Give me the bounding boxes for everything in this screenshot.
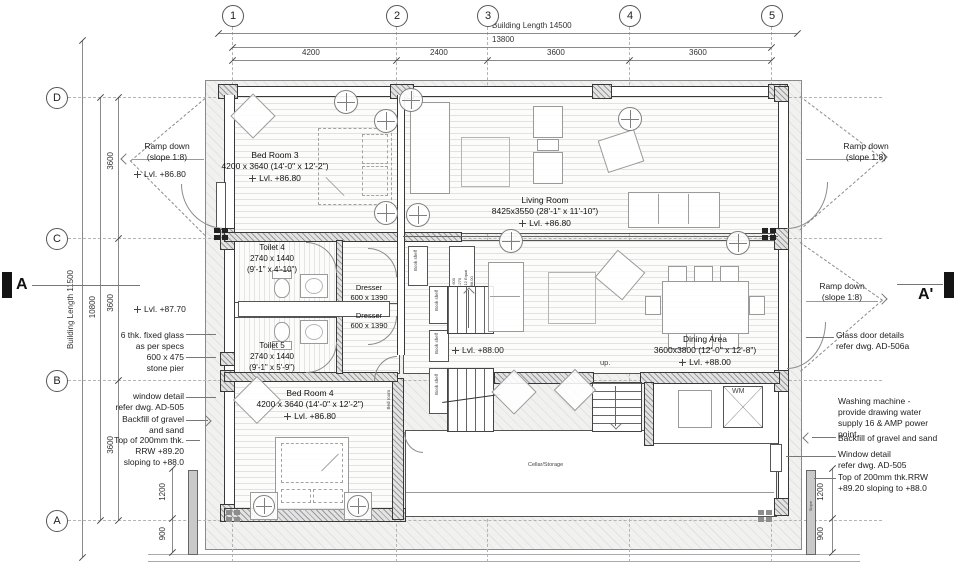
ceiling-fan-icon — [618, 107, 642, 131]
leader-line — [812, 437, 836, 438]
room-name: Toilet 5 — [238, 341, 306, 352]
dining-chair — [645, 296, 661, 315]
armchair — [533, 106, 563, 138]
bookshelf — [429, 330, 449, 362]
room-size: 3600x3800 (12'-0" x 12'-8") — [635, 345, 775, 356]
sofa-seat-line — [658, 194, 659, 224]
wc-bowl — [274, 278, 290, 298]
utility-box — [678, 390, 712, 428]
dim-label: 3600 — [545, 48, 567, 57]
room-level: Lvl. +86.80 — [205, 173, 345, 184]
bookshelf — [429, 286, 449, 324]
dim-label: 4200 — [300, 48, 322, 57]
room-level: Lvl. +88.00 — [635, 357, 775, 368]
dining-table — [662, 281, 749, 334]
slope-label: Slope — [808, 501, 813, 511]
dim-label: Building Length 11500 — [66, 268, 75, 351]
site-boundary-line — [148, 561, 860, 562]
ramp-note: Ramp down (slope 1:8) — [128, 141, 206, 163]
room-level: Lvl. +86.80 — [240, 411, 380, 422]
ceiling-fan-icon — [374, 109, 398, 133]
level-note: Lvl. +87.70 — [134, 304, 186, 315]
dim-label: 13800 — [490, 35, 516, 44]
room-size: 600 x 1390 — [341, 321, 397, 331]
bookshelf-label: Book shelf — [434, 374, 439, 395]
room-size: 2740 x 1440 — [238, 352, 306, 363]
side-table — [537, 139, 559, 151]
fixed-glass-note: 6 thk. fixed glass as per specs — [94, 330, 184, 352]
stone-pier — [220, 352, 235, 366]
dim-label: 3600 — [687, 48, 709, 57]
console-cabinet — [410, 102, 450, 194]
room-name: Toilet 4 — [238, 243, 306, 254]
grid-bubble-A: A — [46, 510, 68, 532]
level-marker-icon — [284, 413, 291, 420]
bed-pillow — [362, 134, 388, 164]
center-partition-wall — [397, 95, 405, 355]
dining-chair — [749, 296, 765, 315]
living-room-label: Living Room 8425x3550 (28'-1" x 11'-10")… — [475, 195, 615, 229]
wm-room-west-wall — [644, 382, 654, 446]
dimension-line — [82, 40, 83, 557]
ceiling-fan-icon — [334, 90, 358, 114]
level-marker-icon — [134, 306, 141, 313]
leader-line — [186, 440, 200, 441]
sofa-seat-line — [490, 296, 520, 297]
east-wall-window-detail — [770, 444, 782, 472]
grid-bubble-5: 5 — [761, 5, 783, 27]
section-label-A-prime: A' — [918, 286, 933, 304]
dining-chair — [720, 266, 739, 282]
washbasin-bowl — [305, 324, 323, 340]
bookshelf — [429, 368, 449, 414]
room-name: Dresser — [341, 283, 397, 293]
rug — [548, 272, 596, 324]
cellar-inner-line — [406, 492, 774, 493]
glass-door-note: Glass door details refer dwg. AD-506a — [836, 330, 909, 352]
bedroom4-label: Bed Room 4 4200 x 3640 (14'-0" x 12'-2")… — [240, 388, 380, 422]
dim-label: Building Length 14500 — [490, 21, 574, 30]
toilet-north-wall — [224, 232, 462, 242]
window-detail-note: Window detail refer dwg. AD-505 — [838, 449, 907, 471]
backfill-note: Backfill of gravel and sand — [838, 433, 937, 444]
grid-bubble-4: 4 — [619, 5, 641, 27]
dimension-line — [832, 468, 833, 552]
section-label-A: A — [16, 276, 28, 294]
ceiling-fan-icon — [374, 201, 398, 225]
washing-machine-label: WM — [732, 388, 744, 395]
dim-label: 900 — [158, 526, 167, 541]
slope-bar: Slope — [806, 470, 816, 555]
slope-bar — [188, 470, 198, 555]
door-arc — [787, 322, 826, 369]
bedroom4-east-wall — [392, 378, 404, 520]
leader-line — [806, 337, 834, 338]
room-size2: (9'-1" x 4'-10") — [238, 265, 306, 276]
ramp-note: Ramp down (slope 1:8) — [834, 141, 898, 163]
grid-bubble-D: D — [46, 87, 68, 109]
stone-pier-note: 600 x 475 stone pier — [94, 352, 184, 374]
column-marker-icon — [762, 228, 776, 240]
rug — [461, 137, 510, 187]
door-arc — [787, 182, 828, 229]
dim-tick — [794, 30, 801, 37]
dim-label: 1200 — [816, 482, 825, 502]
leader-line — [186, 357, 216, 358]
ceiling-fan-icon — [406, 203, 430, 227]
ceiling-speaker-box — [250, 492, 278, 520]
level-marker-icon — [519, 220, 526, 227]
ceiling-fan-icon — [347, 495, 369, 517]
grid-bubble-1: 1 — [222, 5, 244, 27]
dim-label: 3600 — [106, 292, 115, 314]
ceiling-fan-icon — [499, 229, 523, 253]
section-marker-icon — [944, 272, 954, 298]
column-marker-icon — [226, 510, 240, 522]
leader-line — [786, 456, 836, 457]
dim-label: 900 — [816, 526, 825, 541]
section-line — [32, 285, 140, 286]
washbasin-bowl — [305, 278, 323, 294]
room-name: Living Room — [475, 195, 615, 206]
wall-pier — [774, 86, 789, 102]
bedroom-door-label: Bed room — [386, 390, 391, 410]
sofa — [488, 262, 524, 332]
dimension-line — [232, 60, 771, 61]
room-size: 8425x3550 (28'-1" x 11'-10") — [475, 206, 615, 217]
room-level: Lvl. +86.80 — [475, 218, 615, 229]
sofa-seat-line — [688, 194, 689, 224]
cellar-north-wall — [640, 372, 780, 384]
floor-plan-sheet: Book shelf Book shelf Book shelf Book sh… — [0, 0, 960, 584]
level-step-edge — [403, 236, 778, 237]
wall-pier — [774, 498, 789, 516]
ceiling-fan-icon — [726, 231, 750, 255]
bed-pillow — [281, 489, 311, 503]
level-marker-icon — [679, 359, 686, 366]
wall-pier — [774, 228, 789, 250]
door-arc — [181, 184, 225, 229]
room-size: 4200 x 3640 (14'-0" x 12'-2") — [205, 161, 345, 172]
section-marker-icon — [2, 272, 12, 298]
wc-bowl — [274, 322, 290, 342]
wall-pier — [592, 84, 612, 99]
level-marker-icon — [452, 347, 459, 354]
bed-pillow — [362, 166, 388, 196]
room-size: 2740 x 1440 — [238, 254, 306, 265]
room-size: 600 x 1390 — [341, 293, 397, 303]
dimension-line — [172, 468, 173, 552]
leader-line — [186, 397, 216, 398]
grid-bubble-C: C — [46, 228, 68, 250]
toilet-south-wall — [224, 372, 398, 382]
room-size: 4200 x 3640 (14'-0" x 12'-2") — [240, 399, 380, 410]
bedroom3-label: Bed Room 3 4200 x 3640 (14'-0" x 12'-2")… — [205, 150, 345, 184]
bookshelf-label: Book shelf — [434, 290, 439, 311]
rrw-note: Top of 200mm thk.RRW +89.20 sloping to +… — [838, 472, 928, 494]
dining-chair — [694, 266, 713, 282]
leader-line — [814, 478, 836, 479]
ramp-note: Ramp down (slope 1:8) — [810, 281, 874, 303]
column-marker-icon — [758, 510, 772, 522]
site-boundary-line — [148, 554, 860, 555]
dining-area-label: Dining Area 3600x3800 (12'-0" x 12'-8") … — [635, 334, 775, 368]
room-name: Dining Area — [635, 334, 775, 345]
leader-line — [186, 420, 208, 421]
column-marker-icon — [214, 228, 228, 240]
room-name: Dresser — [341, 311, 397, 321]
hall-level-label: Lvl. +88.00 — [452, 345, 504, 356]
level-marker-icon — [249, 175, 256, 182]
toilet4-label: Toilet 4 2740 x 1440 (9'-1" x 4'-10") — [238, 243, 306, 275]
bed-duvet — [281, 443, 343, 483]
rrw-note: Top of 200mm thk. RRW +89.20 sloping to … — [86, 435, 184, 468]
window-detail-note: window detail refer dwg. AD-505 — [90, 391, 184, 413]
level-note: Lvl. +86.80 — [134, 169, 186, 180]
leader-line — [186, 334, 216, 335]
level-marker-icon — [134, 171, 141, 178]
section-line — [897, 284, 943, 285]
dim-label: 2400 — [428, 48, 450, 57]
dim-label: 1200 — [158, 482, 167, 502]
ceiling-speaker-box — [344, 492, 372, 520]
bookshelf — [408, 246, 428, 286]
east-wall-windows — [778, 95, 789, 504]
leader-arrow-icon — [802, 432, 813, 443]
room-size2: (9'-1" x 5'-9") — [238, 363, 306, 374]
dresser2-label: Dresser 600 x 1390 — [341, 311, 397, 331]
grid-bubble-2: 2 — [386, 5, 408, 27]
armchair — [533, 152, 563, 184]
cellar-label: Cellar/Storage — [528, 462, 563, 468]
ceiling-fan-icon — [399, 88, 423, 112]
dining-chair — [668, 266, 687, 282]
dim-tick — [79, 554, 86, 561]
stair-up-label: up. — [600, 358, 610, 367]
ceiling-fan-icon — [253, 495, 275, 517]
toilet5-label: Toilet 5 2740 x 1440 (9'-1" x 5'-9") — [238, 341, 306, 373]
bookshelf-label: Book shelf — [434, 333, 439, 354]
room-name: Bed Room 3 — [205, 150, 345, 161]
grid-line-C — [68, 238, 882, 239]
grid-bubble-3: 3 — [477, 5, 499, 27]
backfill-note: Backfill of gravel and sand — [90, 414, 184, 436]
bookshelf-label: Book shelf — [413, 250, 418, 271]
dimension-line — [218, 33, 797, 34]
sofa — [628, 192, 720, 228]
dim-label: 3600 — [106, 150, 115, 172]
dim-label: 10800 — [88, 294, 97, 320]
bed-pillow — [313, 489, 343, 503]
dresser1-label: Dresser 600 x 1390 — [341, 283, 397, 303]
grid-bubble-B: B — [46, 370, 68, 392]
room-name: Bed Room 4 — [240, 388, 380, 399]
north-wall-windows — [224, 86, 786, 97]
